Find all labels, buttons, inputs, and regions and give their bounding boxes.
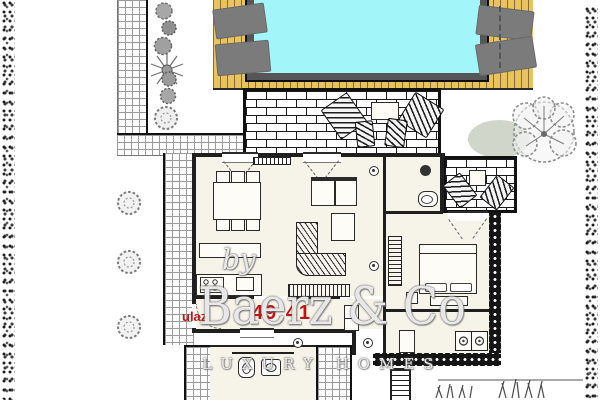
grass-tuft-icon — [432, 382, 474, 399]
watermark-brand: Baerz & Co — [198, 276, 466, 336]
dining-chair-icon — [216, 219, 230, 231]
dining-chair-icon — [231, 171, 245, 183]
porch-wall — [232, 352, 294, 354]
corner-sofa-icon — [296, 253, 346, 276]
sofa-icon — [311, 177, 357, 206]
shrub-icon — [156, 86, 180, 106]
wall-lamp-icon — [369, 261, 379, 271]
outdoor-chair-icon — [355, 120, 376, 148]
outdoor-table-icon — [469, 170, 486, 186]
hedge-left — [2, 0, 15, 400]
washbasin-icon — [420, 165, 431, 176]
dining-chair-icon — [246, 171, 260, 183]
bush-icon — [114, 313, 144, 341]
dining-chair-icon — [231, 219, 245, 231]
bush-icon — [114, 189, 144, 217]
wall-lamp-icon — [293, 338, 303, 348]
floor-plan-canvas: ulaz 49,41 by Baerz & Co LUXURY HOMES — [0, 0, 600, 400]
radiator-icon — [253, 157, 291, 165]
swimming-pool — [247, 0, 487, 80]
outdoor-table-icon — [371, 102, 399, 120]
wall-bathroom-south — [385, 211, 443, 214]
bush-icon — [151, 104, 181, 132]
wall-bathroom-east — [440, 155, 444, 213]
sun-lounger-icon — [215, 40, 272, 77]
watermark-by: by — [222, 243, 256, 276]
coffee-table-icon — [331, 213, 355, 241]
deck-dashed-line — [499, 6, 501, 68]
hedge-right — [585, 6, 598, 400]
washing-machine-icon — [471, 331, 488, 351]
wall-insulated-east — [489, 211, 501, 362]
watermark-tagline: LUXURY HOMES — [202, 355, 443, 373]
tile-path-vertical — [117, 0, 148, 152]
window-north-2 — [303, 152, 341, 163]
dining-table-icon — [213, 182, 261, 220]
outdoor-chair-icon — [384, 118, 408, 149]
dining-chair-icon — [216, 171, 230, 183]
toilet-icon — [418, 191, 438, 207]
dining-chair-icon — [246, 219, 260, 231]
bush-icon — [114, 248, 144, 276]
door-terrace-east — [448, 211, 488, 221]
grass-tuft-icon — [494, 377, 549, 399]
wall-lamp-icon — [369, 166, 379, 176]
wall-lamp-icon — [363, 338, 373, 348]
